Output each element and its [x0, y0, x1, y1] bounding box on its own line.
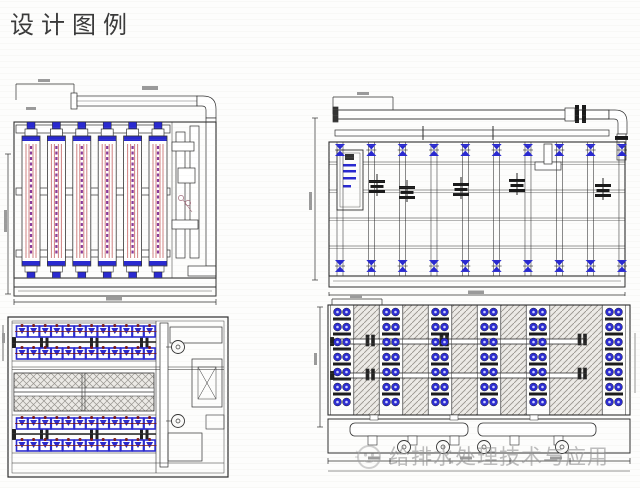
- watermark: 给排水处理技术与应用: [354, 441, 609, 471]
- watermark-smiley-face-icon: [354, 441, 384, 471]
- plan-view-left-drawing: [2, 303, 234, 485]
- hatch-strips: [354, 305, 602, 415]
- plan-left-dimension-text-marks: [2, 333, 5, 343]
- side-valve-stacks: [369, 173, 611, 202]
- page-title: 设计图例: [10, 5, 134, 40]
- front-elevation-drawing: [2, 70, 238, 306]
- watermark-text: 给排水处理技术与应用: [389, 441, 609, 471]
- slide: { "page": { "title": "设计图例", "background…: [0, 0, 640, 488]
- side-elevation-drawing: [303, 84, 640, 296]
